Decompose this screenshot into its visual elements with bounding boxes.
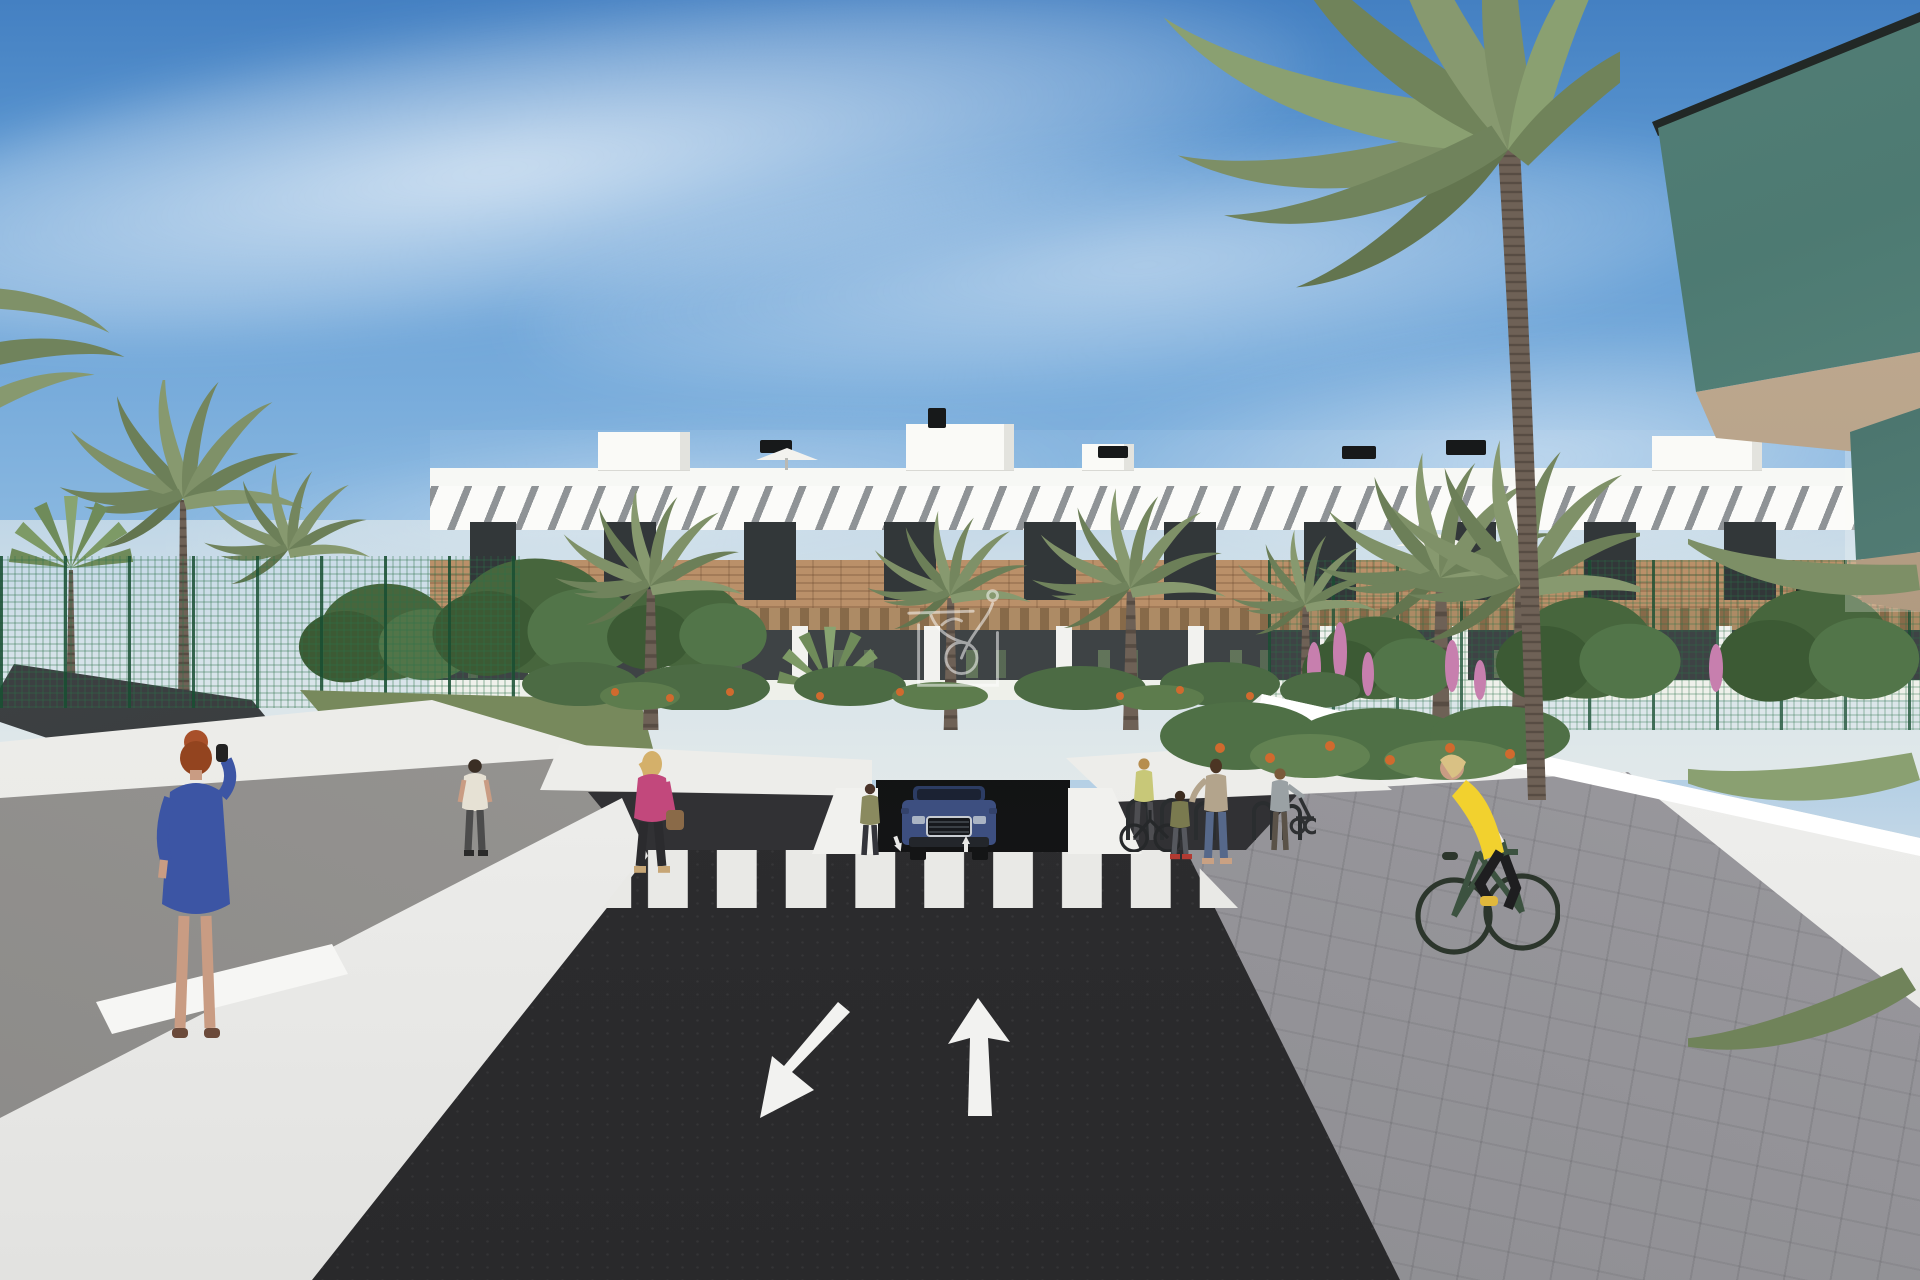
sports-fence-right [1268, 560, 1920, 730]
roof-vent [1342, 446, 1376, 459]
roof-stair-core [1652, 436, 1762, 471]
roof-chimney [928, 408, 946, 428]
road-arrow-toward-viewer [752, 996, 862, 1126]
roof-parasol [1392, 530, 1478, 560]
roof-stair-core [906, 424, 1014, 471]
sports-fence-left [0, 556, 520, 708]
roof-vent [1098, 446, 1128, 458]
render-canvas [0, 0, 1920, 1280]
bike-racks [1122, 792, 1318, 842]
road-arrow-away [938, 998, 1018, 1118]
roof-vent [1446, 440, 1486, 455]
roof-stair-core [598, 432, 690, 471]
roof-parasol [752, 446, 822, 472]
ramp-lane-arrows [888, 834, 988, 854]
watermark-logo [903, 572, 1015, 704]
